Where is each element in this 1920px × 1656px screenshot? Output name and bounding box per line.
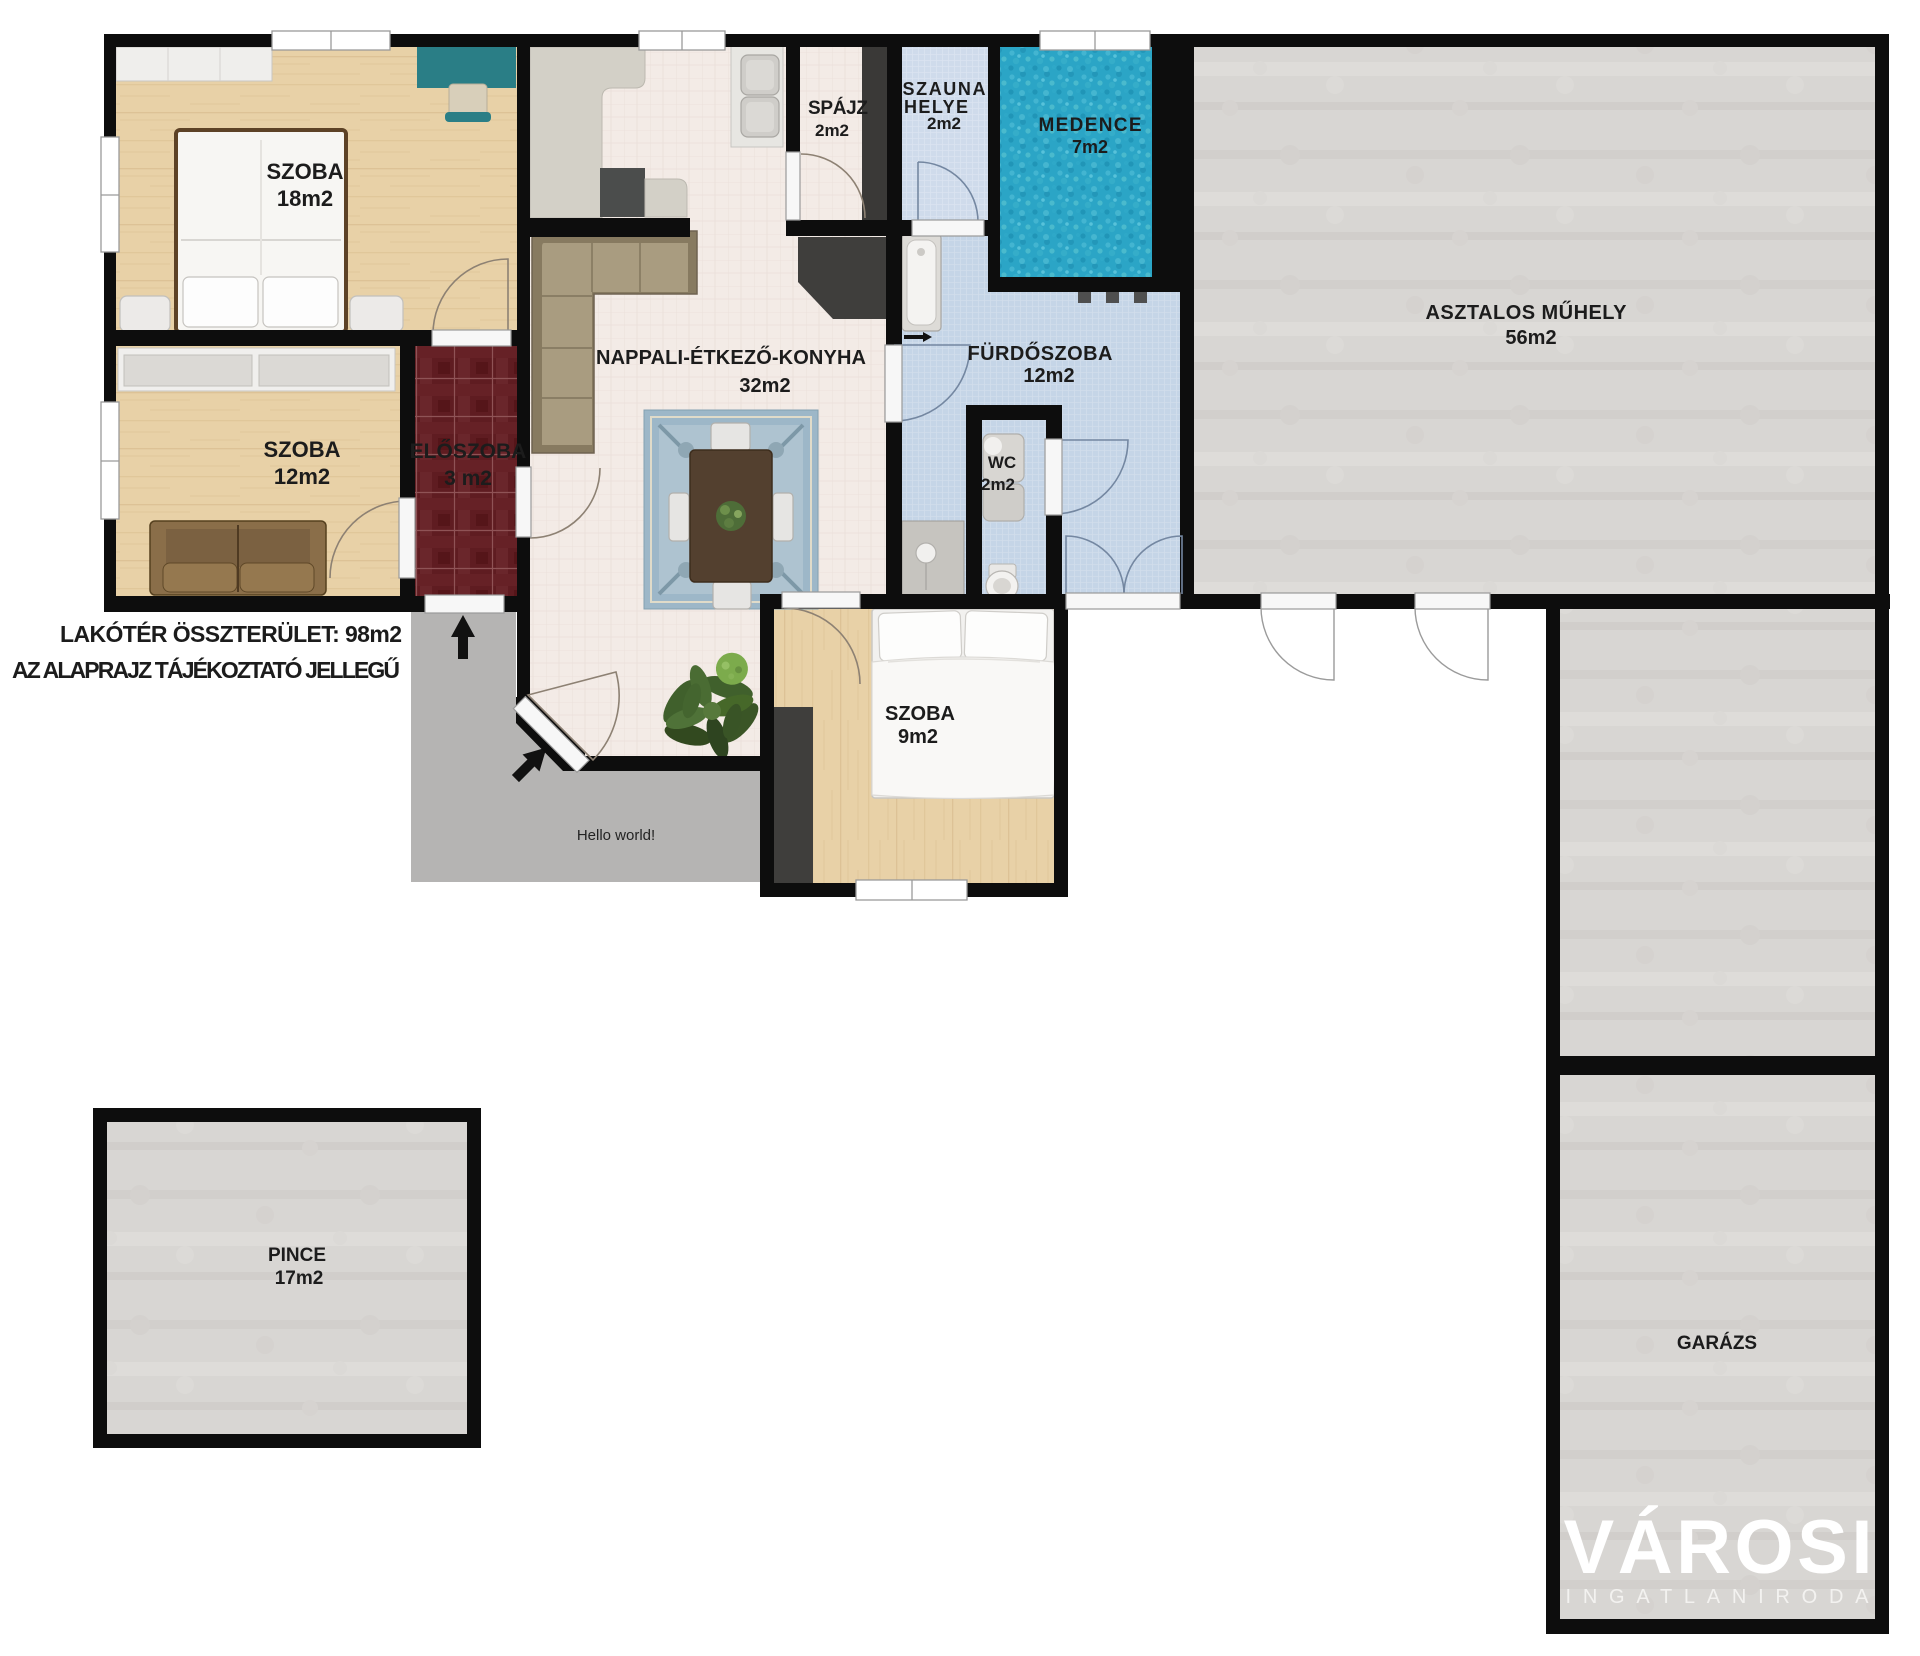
svg-text:SZOBA: SZOBA [267, 159, 344, 184]
svg-text:SZOBA: SZOBA [885, 703, 955, 725]
svg-text:LAKÓTÉR ÖSSZTERÜLET: 98m2: LAKÓTÉR ÖSSZTERÜLET: 98m2 [60, 620, 402, 647]
svg-text:56m2: 56m2 [1505, 327, 1556, 349]
svg-text:18m2: 18m2 [277, 186, 333, 211]
svg-text:GARÁZS: GARÁZS [1677, 1332, 1757, 1354]
svg-text:ASZTALOS MŰHELY: ASZTALOS MŰHELY [1426, 301, 1628, 324]
svg-text:17m2: 17m2 [275, 1268, 324, 1289]
svg-text:SPÁJZ: SPÁJZ [808, 97, 868, 119]
svg-text:AZ ALAPRAJZ TÁJÉKOZTATÓ JELLEG: AZ ALAPRAJZ TÁJÉKOZTATÓ JELLEGŰ [12, 656, 400, 683]
svg-text:32m2: 32m2 [739, 375, 790, 397]
svg-text:Hello world!: Hello world! [577, 827, 655, 844]
svg-text:2m2: 2m2 [981, 475, 1015, 494]
svg-text:NAPPALI-ÉTKEZŐ-KONYHA: NAPPALI-ÉTKEZŐ-KONYHA [596, 346, 866, 369]
svg-text:2m2: 2m2 [927, 114, 961, 133]
svg-text:3 m2: 3 m2 [444, 467, 492, 490]
svg-text:12m2: 12m2 [274, 464, 330, 489]
svg-text:ELŐSZOBA: ELŐSZOBA [410, 440, 527, 463]
svg-text:SZOBA: SZOBA [264, 437, 341, 462]
svg-text:2m2: 2m2 [815, 121, 849, 140]
svg-text:MEDENCE: MEDENCE [1039, 115, 1142, 136]
svg-text:7m2: 7m2 [1072, 137, 1108, 157]
svg-text:9m2: 9m2 [898, 726, 938, 748]
svg-text:WC: WC [988, 453, 1016, 472]
svg-text:VÁROSI: VÁROSI [1564, 1505, 1873, 1590]
svg-text:PINCE: PINCE [268, 1245, 326, 1266]
svg-text:FÜRDŐSZOBA: FÜRDŐSZOBA [968, 342, 1113, 365]
svg-text:12m2: 12m2 [1023, 365, 1074, 387]
